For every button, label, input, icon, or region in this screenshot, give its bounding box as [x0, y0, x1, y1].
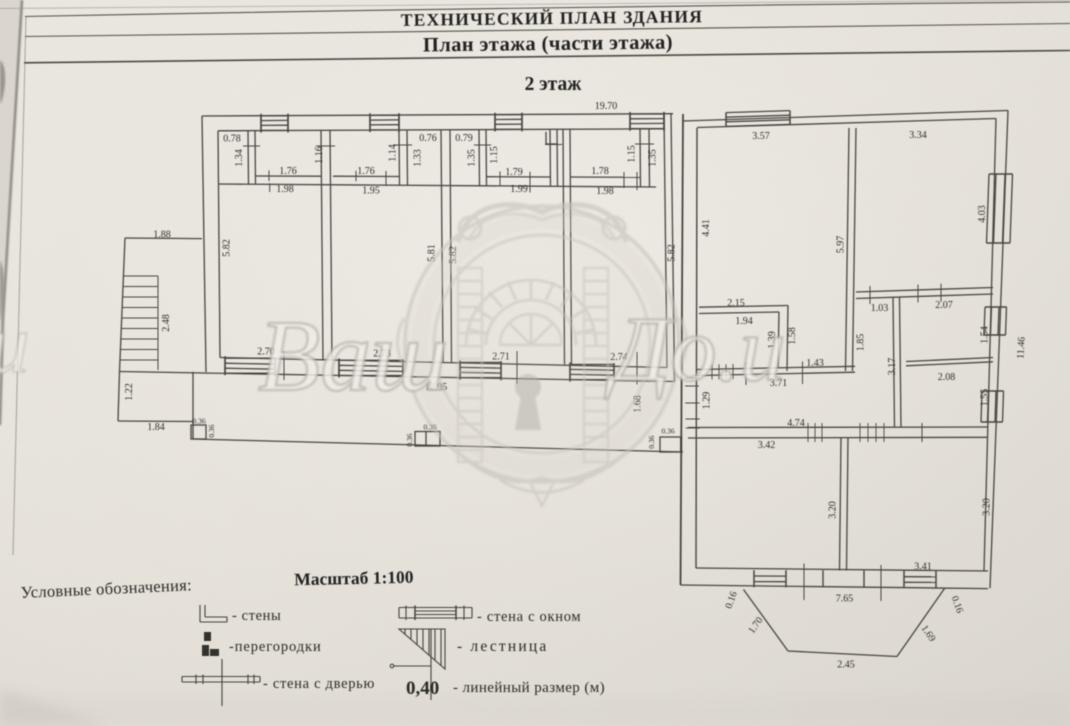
svg-text:0.78: 0.78: [223, 134, 241, 145]
svg-text:1.76: 1.76: [357, 166, 375, 177]
svg-text:1.43: 1.43: [806, 358, 824, 369]
svg-text:3.20: 3.20: [982, 498, 993, 516]
svg-text:0.36: 0.36: [405, 433, 414, 446]
svg-text:1.78: 1.78: [591, 166, 609, 177]
svg-text:0.36: 0.36: [647, 435, 656, 448]
svg-text:4.74: 4.74: [787, 418, 805, 429]
svg-text:2 этаж: 2 этаж: [525, 74, 583, 95]
svg-text:0,40: 0,40: [406, 678, 439, 699]
svg-text:Масштаб 1:100: Масштаб 1:100: [294, 567, 414, 589]
svg-text:ТЕХНИЧЕСКИЙ ПЛАН ЗДАНИЯ: ТЕХНИЧЕСКИЙ ПЛАН ЗДАНИЯ: [401, 6, 703, 30]
svg-text:- стена с дверью: - стена с дверью: [263, 676, 375, 692]
svg-text:-перегородки: -перегородки: [229, 639, 322, 655]
svg-text:1.85: 1.85: [856, 334, 867, 352]
svg-text:- лестница: - лестница: [457, 638, 548, 655]
svg-text:1.54: 1.54: [980, 326, 991, 344]
svg-text:1.33: 1.33: [413, 149, 424, 167]
svg-text:2.07: 2.07: [935, 300, 953, 311]
svg-text:1.95: 1.95: [362, 186, 380, 197]
svg-text:0.76: 0.76: [419, 133, 437, 144]
svg-text:2.45: 2.45: [837, 660, 855, 671]
svg-text:1.22: 1.22: [124, 383, 135, 401]
svg-text:1.58: 1.58: [787, 327, 798, 345]
svg-text:5.97: 5.97: [836, 236, 847, 254]
svg-text:1.99: 1.99: [510, 184, 528, 195]
svg-text:2.48: 2.48: [161, 314, 172, 332]
svg-text:5.82: 5.82: [667, 244, 678, 262]
svg-text:0.36: 0.36: [192, 417, 205, 426]
svg-text:1.35: 1.35: [467, 149, 478, 167]
svg-text:0.79: 0.79: [455, 133, 473, 144]
svg-text:3.20: 3.20: [828, 501, 839, 519]
svg-text:3.34: 3.34: [909, 130, 927, 141]
svg-text:1.16: 1.16: [314, 146, 325, 164]
svg-text:0.36: 0.36: [661, 427, 674, 436]
svg-text:- линейный размер (м): - линейный размер (м): [453, 680, 605, 696]
svg-text:1.15: 1.15: [489, 146, 500, 164]
svg-text:5.82: 5.82: [222, 239, 233, 257]
svg-text:1.55: 1.55: [980, 389, 991, 407]
svg-text:1.35: 1.35: [648, 149, 659, 167]
svg-text:3.42: 3.42: [758, 440, 776, 451]
svg-text:План этажа (части этажа): План этажа (части этажа): [423, 31, 673, 56]
svg-text:4.03: 4.03: [977, 205, 988, 223]
svg-text:1.88: 1.88: [153, 230, 171, 241]
svg-text:7.65: 7.65: [836, 594, 854, 605]
svg-text:1.03: 1.03: [871, 303, 889, 314]
svg-text:1.98: 1.98: [596, 186, 614, 197]
svg-text:1.15: 1.15: [627, 145, 638, 163]
svg-text:3.41: 3.41: [914, 562, 932, 573]
svg-text:2.08: 2.08: [938, 372, 956, 383]
svg-text:19.70: 19.70: [595, 101, 618, 112]
svg-text:Ваш: Ваш: [258, 300, 448, 413]
svg-text:1.79: 1.79: [505, 167, 523, 178]
svg-text:1.84: 1.84: [147, 422, 165, 433]
svg-text:11.46: 11.46: [1015, 337, 1027, 360]
svg-text:1.14: 1.14: [388, 144, 399, 162]
svg-text:1.34: 1.34: [234, 149, 245, 167]
svg-text:- стены: - стены: [232, 608, 281, 624]
svg-text:ш: ш: [0, 298, 29, 391]
svg-text:0.36: 0.36: [207, 424, 216, 437]
svg-text:1.98: 1.98: [276, 184, 294, 195]
svg-text:До.и: До.и: [604, 298, 786, 400]
svg-text:4.41: 4.41: [701, 219, 712, 237]
svg-text:- стена с окном: - стена с окном: [477, 609, 581, 625]
svg-text:3.57: 3.57: [752, 131, 770, 142]
svg-text:3.17: 3.17: [887, 358, 898, 376]
svg-text:1.76: 1.76: [279, 166, 297, 177]
